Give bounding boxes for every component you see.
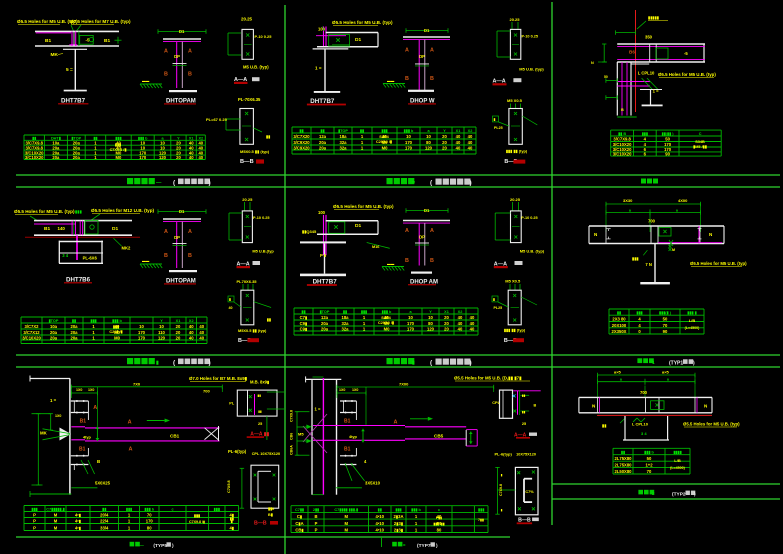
svg-text:D1: D1 [355, 223, 361, 229]
svg-text:X1: X1 [176, 319, 181, 323]
svg-text:P-10 0.25: P-10 0.25 [522, 35, 538, 39]
svg-text:B▮: B▮ [268, 513, 273, 517]
svg-text:B: B [430, 76, 434, 82]
svg-text:3 4: 3 4 [62, 253, 68, 258]
svg-text:▮: ▮ [156, 360, 159, 366]
svg-text:Ø5.5 Holes for M5 U.B. (typ): Ø5.5 Holes for M5 U.B. (typ) [690, 261, 747, 266]
svg-text:170: 170 [146, 519, 154, 524]
svg-text:7 N: 7 N [645, 262, 652, 267]
svg-text:X1: X1 [456, 129, 461, 133]
svg-text:M5: M5 [298, 432, 304, 437]
svg-text:B—B: B—B [240, 159, 254, 165]
svg-text:20X100: 20X100 [612, 323, 627, 328]
svg-text:4▮: 4▮ [229, 525, 234, 530]
svg-text:▮▮▮: ▮▮▮ [381, 129, 387, 133]
svg-text:3/C10X20: 3/C10X20 [613, 151, 632, 156]
svg-text:PL: PL [229, 402, 235, 406]
svg-text:M: M [54, 519, 58, 524]
svg-text:▮▮: ▮▮ [621, 451, 625, 455]
svg-text:L/B: L/B [674, 458, 681, 463]
svg-text:140: 140 [58, 226, 66, 231]
svg-text:B: B [405, 76, 409, 82]
svg-text:20a: 20a [52, 155, 60, 160]
svg-text:4•▮: 4•▮ [75, 513, 81, 518]
svg-text:20a: 20a [71, 324, 79, 329]
svg-text:1X0: 1X0 [55, 414, 61, 418]
svg-text:B: B [164, 72, 168, 78]
svg-text:22/4: 22/4 [100, 519, 109, 524]
svg-text:D1: D1 [424, 28, 430, 33]
svg-text:2L75X80: 2L75X80 [615, 456, 633, 461]
svg-text:S2B4: S2B4 [381, 316, 391, 320]
svg-text:B: B [534, 404, 537, 408]
svg-text:▮▮▮: ▮▮▮ [31, 507, 37, 511]
svg-text:20a: 20a [321, 326, 329, 331]
svg-text:B1: B1 [44, 226, 50, 232]
svg-text:10: 10 [139, 324, 144, 329]
svg-text:M5 U.B.(typ: M5 U.B.(typ [252, 248, 274, 253]
svg-text:3/C7X20: 3/C7X20 [293, 134, 310, 139]
svg-text:▮▮: ▮▮ [320, 129, 324, 133]
svg-text:1: 1 [652, 360, 655, 366]
svg-text:Y: Y [443, 129, 446, 133]
svg-text:25: 25 [522, 422, 526, 426]
svg-text:▮: ▮ [412, 360, 415, 366]
svg-text:▮TOP: ▮TOP [320, 310, 330, 314]
svg-text:40: 40 [199, 335, 204, 340]
svg-text:20: 20 [442, 134, 447, 139]
svg-text:▮▮: ▮▮ [617, 311, 621, 315]
svg-text:10: 10 [408, 315, 413, 320]
svg-text:33/4: 33/4 [100, 525, 109, 530]
svg-text:M: M [54, 513, 58, 518]
svg-text:M5 X0.5: M5 X0.5 [505, 279, 521, 284]
svg-text:70: 70 [647, 469, 652, 474]
svg-text:▮▮▮ b: ▮▮▮ b [411, 508, 421, 512]
svg-text:▮: ▮ [501, 508, 503, 512]
svg-text:1 =: 1 = [50, 398, 57, 403]
svg-text:CB1: CB1 [170, 434, 180, 439]
svg-text:1 =: 1 = [315, 66, 322, 71]
svg-text:M: M [345, 514, 349, 519]
svg-text:N: N [591, 61, 594, 65]
svg-text:▮▮▮ /▮▮: ▮▮▮ /▮▮ [433, 522, 444, 526]
svg-text:20.25: 20.25 [510, 197, 521, 202]
svg-text:a: a [676, 208, 678, 212]
svg-text:▮▮: ▮▮ [378, 508, 382, 512]
svg-text:P-10 0.25: P-10 0.25 [253, 216, 269, 220]
svg-text:CPL: CPL [492, 401, 500, 405]
svg-text:B1: B1 [344, 419, 351, 425]
svg-text:a×5: a×5 [662, 370, 670, 375]
svg-text:10: 10 [159, 324, 164, 329]
svg-text:Ø5.5 Holes for M5 U.B. (typ): Ø5.5 Holes for M5 U.B. (typ) [14, 209, 75, 214]
svg-text:2X350X: 2X350X [612, 329, 627, 334]
svg-text:40: 40 [470, 315, 475, 320]
svg-text:CPL 10X75X120: CPL 10X75X120 [252, 452, 280, 456]
svg-text:D1: D1 [355, 37, 361, 43]
svg-text:80: 80 [437, 527, 442, 532]
svg-text:12a: 12a [321, 315, 329, 320]
svg-text:20: 20 [444, 326, 449, 331]
svg-text:CB6A: CB6A [290, 445, 294, 455]
svg-text:18a: 18a [342, 315, 350, 320]
svg-text:Ø5.5 Holes for M12 U.B. (typ): Ø5.5 Holes for M12 U.B. (typ) [91, 208, 155, 213]
svg-text:A: A [405, 48, 409, 54]
svg-text:D1: D1 [112, 226, 118, 232]
svg-text:100: 100 [318, 210, 326, 215]
svg-text:S34B: S34B [695, 140, 705, 144]
svg-text:P: P [315, 527, 318, 532]
svg-text:40: 40 [468, 134, 473, 139]
svg-text:2L50X80: 2L50X80 [615, 469, 633, 474]
svg-text:18a: 18a [340, 134, 348, 139]
svg-text:a: a [620, 378, 622, 382]
svg-text:▮TOP: ▮TOP [49, 319, 59, 323]
svg-text:Y: Y [429, 310, 432, 314]
svg-text:B: B [188, 253, 192, 259]
svg-text:▮▮▮▮▮: ▮▮▮▮▮ [648, 15, 659, 20]
svg-text:(TYP1: (TYP1 [669, 360, 683, 366]
svg-text:▮▮▮ b: ▮▮▮ b [382, 310, 392, 314]
svg-text:C▮A: C▮A [295, 521, 303, 526]
svg-text:40: 40 [456, 145, 461, 150]
svg-text:▮▮▮: ▮▮▮ [115, 143, 121, 147]
svg-text:C7▮: C7▮ [300, 315, 308, 320]
svg-text:3/C10X20: 3/C10X20 [25, 155, 44, 160]
svg-text:20: 20 [444, 315, 449, 320]
svg-text:4typ: 4typ [83, 436, 91, 440]
svg-text:▮▮Q345: ▮▮Q345 [302, 229, 317, 234]
svg-text:C7X9.8 /▮: C7X9.8 /▮ [189, 520, 205, 524]
svg-text:20a: 20a [71, 335, 79, 340]
svg-text:40: 40 [456, 134, 461, 139]
svg-text:20.25: 20.25 [242, 197, 253, 202]
svg-text:10: 10 [428, 315, 433, 320]
svg-text:2▮3▮: 2▮3▮ [394, 527, 403, 532]
svg-text:Y: Y [160, 319, 163, 323]
svg-text:—: — [156, 180, 162, 186]
svg-text:4X00: 4X00 [678, 198, 688, 203]
svg-text:▮▮: ▮▮ [258, 410, 262, 414]
svg-text:▮▮: ▮▮ [522, 394, 526, 398]
svg-text:700: 700 [648, 219, 656, 224]
svg-text:▮▮▮: ▮▮▮ [361, 310, 367, 314]
svg-text:▮▮: ▮▮ [267, 318, 271, 322]
svg-text:Ø5.5 Holes for M5 U.B. (typ): Ø5.5 Holes for M5 U.B. (typ) [333, 204, 394, 209]
svg-text:▮▮▮▮: ▮▮▮▮ [673, 451, 681, 455]
svg-text:7X0: 7X0 [133, 381, 141, 386]
svg-text:PL=67 0.25: PL=67 0.25 [206, 117, 228, 122]
svg-text:▮▮: ▮▮ [258, 394, 262, 398]
svg-text:7X00: 7X00 [399, 381, 409, 386]
svg-text:1X0: 1X0 [339, 388, 345, 392]
svg-text:170: 170 [407, 326, 415, 331]
svg-text:170: 170 [138, 335, 146, 340]
svg-text:C7▮▮▮▮▮,▮: C7▮▮▮▮▮,▮ [46, 507, 64, 511]
svg-text:▮M5 /▮▮: ▮M5 /▮▮ [693, 145, 707, 149]
svg-text:2▮3A: 2▮3A [394, 514, 404, 519]
svg-text:B: B [314, 514, 317, 519]
svg-text:PL-70X6.35: PL-70X6.35 [238, 97, 261, 102]
svg-text:P: P [33, 525, 36, 530]
svg-text:12a: 12a [319, 134, 327, 139]
svg-text:2▮3▮: 2▮3▮ [394, 521, 403, 526]
svg-text:▮▮: ▮▮ [72, 319, 76, 323]
svg-text:20a: 20a [319, 145, 327, 150]
svg-text:C7X9.8: C7X9.8 [227, 480, 231, 493]
svg-text:D1: D1 [179, 29, 185, 34]
svg-text:3/C9X20: 3/C9X20 [293, 145, 310, 150]
svg-text:40: 40 [229, 306, 233, 310]
svg-text:20a: 20a [73, 155, 81, 160]
svg-text:1 =: 1 = [653, 89, 659, 94]
svg-text:120: 120 [425, 145, 433, 150]
svg-text:PL70X6.35: PL70X6.35 [237, 279, 258, 284]
svg-text:40: 40 [189, 335, 194, 340]
svg-text:M5 U.B. (typ): M5 U.B. (typ) [519, 67, 544, 72]
svg-text:DP: DP [419, 235, 425, 240]
svg-text:▮▮▮: ▮▮▮ [126, 507, 132, 511]
svg-text:4•▮: 4•▮ [75, 525, 81, 530]
svg-text:40: 40 [470, 326, 475, 331]
svg-text:DP: DP [419, 54, 425, 59]
svg-text:C7X9.8: C7X9.8 [290, 410, 294, 422]
svg-text:B1: B1 [80, 419, 87, 425]
svg-text:CB6: CB6 [290, 433, 294, 440]
svg-text:5 =: 5 = [66, 67, 73, 73]
svg-text:M0: M0 [384, 326, 390, 331]
svg-text:A: A [430, 228, 434, 234]
svg-text:c: c [438, 508, 440, 512]
svg-text:4•10: 4•10 [376, 521, 385, 526]
svg-text:PL-6(typ): PL-6(typ) [228, 449, 247, 454]
svg-text:1X0: 1X0 [76, 388, 82, 392]
svg-text:3 4: 3 4 [641, 431, 647, 436]
svg-text:▮▮▮: ▮▮▮ [113, 325, 119, 329]
svg-text:10a: 10a [50, 324, 58, 329]
svg-text:X2: X2 [468, 129, 473, 133]
svg-text:D1: D1 [179, 209, 185, 214]
svg-text:▮▮: ▮▮ [102, 507, 106, 511]
svg-text:25: 25 [258, 422, 262, 426]
svg-text:M5 X0.5: M5 X0.5 [507, 98, 523, 103]
svg-text:A: A [164, 49, 168, 55]
svg-text:▮▮: ▮▮ [230, 517, 234, 521]
svg-text:MK: MK [51, 52, 59, 58]
svg-text:▮▮▮: ▮▮▮ [214, 507, 220, 511]
svg-text:X2: X2 [458, 310, 463, 314]
svg-text:C20B2 /▮: C20B2 /▮ [378, 321, 394, 325]
svg-text:20: 20 [442, 145, 447, 150]
svg-text:40: 40 [198, 155, 203, 160]
svg-text:A: A [93, 405, 97, 411]
svg-text:4•10: 4•10 [376, 514, 385, 519]
svg-text:M: M [672, 248, 675, 252]
svg-text:▮▮▮ b: ▮▮▮ b [144, 507, 154, 511]
svg-text:B6: B6 [629, 50, 635, 55]
svg-text:M5 U.B. (typ): M5 U.B. (typ) [520, 248, 545, 253]
svg-text:3X30: 3X30 [623, 198, 633, 203]
svg-text:120: 120 [158, 335, 166, 340]
svg-text:20: 20 [176, 335, 181, 340]
svg-text:C7▮▮: C7▮▮ [295, 508, 304, 512]
svg-text:a: a [667, 378, 669, 382]
svg-text:Ø5.5 Holes for M5 U.B. (typ): Ø5.5 Holes for M5 U.B. (typ) [683, 422, 740, 427]
svg-text:A: A [129, 446, 133, 452]
svg-text:▮▮▮ b: ▮▮▮ b [112, 319, 122, 323]
svg-text:▮▮▮: ▮▮▮ [642, 132, 648, 136]
svg-text:▮TOP: ▮TOP [338, 129, 348, 133]
svg-text:M0: M0 [116, 155, 122, 160]
svg-text:(TYP7: (TYP7 [417, 543, 431, 549]
svg-text:): ) [470, 180, 472, 187]
svg-text:C20B2 /▮: C20B2 /▮ [376, 140, 392, 144]
svg-text:M5X0.5 ▮▮ (typ): M5X0.5 ▮▮ (typ) [238, 328, 267, 333]
svg-text:20/4: 20/4 [100, 513, 109, 518]
svg-text:P: P [33, 519, 36, 524]
svg-text:=: = [412, 180, 415, 186]
svg-text:10: 10 [406, 134, 411, 139]
svg-text:M0: M0 [114, 335, 120, 340]
svg-text:▮: ▮ [493, 298, 495, 302]
svg-text:L/B: L/B [689, 318, 696, 323]
svg-text:20.25: 20.25 [241, 17, 253, 22]
svg-text:2X3 80: 2X3 80 [612, 317, 626, 322]
svg-text:90: 90 [665, 151, 670, 156]
svg-text:L CPL10: L CPL10 [638, 71, 655, 76]
svg-text:3/C10X20: 3/C10X20 [22, 335, 41, 340]
svg-text:40: 40 [458, 315, 463, 320]
svg-text:C7X9.8: C7X9.8 [499, 484, 503, 496]
svg-text:10X75X120: 10X75X120 [516, 452, 536, 456]
svg-text:C: C [699, 132, 702, 136]
svg-text:3/C7X9.8: 3/C7X9.8 [613, 137, 631, 142]
svg-text:20a: 20a [50, 335, 58, 340]
svg-text:▮▮▮ b: ▮▮▮ b [404, 129, 414, 133]
svg-text:B: B [621, 108, 624, 112]
svg-text:Ø5.5 Holes for M5 U.B. (D,▮▮ ▮: Ø5.5 Holes for M5 U.B. (D,▮▮ ▮7▮ [454, 376, 522, 381]
svg-text:▮▮▮: ▮▮▮ [636, 311, 642, 315]
svg-text:40: 40 [199, 324, 204, 329]
svg-text:▮▮▮: ▮▮▮ [632, 256, 639, 261]
svg-text:P: P [33, 513, 36, 518]
svg-text:▮▮6: ▮▮6 [268, 507, 274, 511]
svg-text:▮▮▮ ▮: ▮▮▮ ▮ [687, 311, 696, 315]
svg-text:50: 50 [647, 456, 652, 461]
svg-text:MK: MK [40, 431, 48, 436]
svg-text:2▮▮: 2▮▮ [313, 508, 319, 512]
svg-text:B: B [164, 253, 168, 259]
svg-text:C7%: C7% [525, 490, 534, 494]
svg-text:-5: -5 [86, 38, 90, 43]
svg-text:MK2: MK2 [122, 246, 132, 251]
svg-text:C20▮ /▮: C20▮ /▮ [109, 330, 122, 334]
svg-text:100: 100 [318, 27, 326, 32]
svg-text:▮▮▮ b: ▮▮▮ b [644, 451, 654, 455]
svg-text:B: B [97, 459, 100, 464]
svg-text:A: A [188, 229, 192, 235]
svg-text:Ø7.5 Holes for M7 U.B. (typ): Ø7.5 Holes for M7 U.B. (typ) [70, 19, 131, 24]
svg-text:40: 40 [189, 324, 194, 329]
svg-text:3/C7X2: 3/C7X2 [25, 324, 40, 329]
svg-text:P 6: P 6 [320, 253, 327, 258]
svg-text:▮▮▮ ▮▮ (typ): ▮▮▮ ▮▮ (typ) [506, 148, 528, 153]
svg-text:B1: B1 [104, 38, 110, 44]
svg-text:M5 U.B. (typ): M5 U.B. (typ) [243, 65, 269, 70]
svg-text:P-10 0.25: P-10 0.25 [255, 34, 273, 39]
svg-text:B: B [430, 258, 434, 264]
svg-text:X1: X1 [444, 310, 449, 314]
svg-text:PL25: PL25 [494, 126, 503, 130]
svg-text:PL-6X6: PL-6X6 [83, 255, 98, 260]
svg-text:▮▮▮: ▮▮▮ [478, 508, 484, 512]
svg-text:B1: B1 [79, 447, 86, 453]
svg-text:A: A [405, 228, 409, 234]
svg-text:a×5: a×5 [614, 370, 622, 375]
svg-text:CB5: CB5 [434, 434, 444, 439]
svg-text:(TYP5: (TYP5 [153, 543, 167, 549]
svg-text:4•10: 4•10 [376, 527, 385, 532]
svg-text:Ø5.5 Holes for M5 U.B. (typ): Ø5.5 Holes for M5 U.B. (typ) [17, 19, 78, 24]
svg-text:4•▮: 4•▮ [75, 519, 81, 524]
svg-text:CB▮: CB▮ [295, 527, 303, 532]
svg-text:▮▮: ▮▮ [343, 310, 347, 314]
svg-text:M5X0.5 ▮▮ (typ): M5X0.5 ▮▮ (typ) [240, 149, 270, 154]
svg-text:): ) [470, 360, 472, 367]
svg-text:▮▮: ▮▮ [299, 129, 303, 133]
svg-text:▮: ▮ [501, 473, 503, 477]
svg-text:50: 50 [665, 137, 670, 142]
svg-text:▮▮: ▮▮ [301, 310, 305, 314]
svg-text:C7▮▮▮▮ ▮▮▮,▮: C7▮▮▮▮ ▮▮▮,▮ [334, 508, 358, 512]
svg-text:▮▮▮: ▮▮▮ [90, 319, 96, 323]
svg-text:20.25: 20.25 [510, 17, 521, 22]
svg-text:M0: M0 [382, 145, 388, 150]
svg-text:80: 80 [147, 525, 152, 530]
svg-text:B: B [188, 72, 192, 78]
svg-text:A: A [164, 229, 168, 235]
svg-text:A: A [394, 419, 398, 425]
svg-text:700: 700 [203, 389, 210, 394]
svg-text:▮▮: ▮▮ [266, 135, 270, 139]
svg-text:20: 20 [176, 324, 181, 329]
svg-text:1X0: 1X0 [88, 388, 94, 392]
svg-text:B—B: B—B [254, 521, 267, 527]
svg-text:90: 90 [663, 329, 668, 334]
svg-text:700: 700 [640, 390, 648, 395]
svg-text:▮▮(▮▮ ): ▮▮(▮▮ ) [662, 132, 675, 136]
svg-text:X2: X2 [189, 319, 194, 323]
svg-text:7▮▮: 7▮▮ [478, 518, 484, 522]
svg-text:(TYP2: (TYP2 [672, 491, 686, 497]
svg-text:2: 2 [652, 491, 655, 496]
svg-text:P: P [315, 521, 318, 526]
svg-text:A: A [128, 419, 132, 425]
svg-text:▮▮ B: ▮▮ B [618, 132, 626, 136]
svg-text:PL-6(typ): PL-6(typ) [495, 451, 513, 456]
svg-text:M: M [345, 521, 349, 526]
svg-text:M.B. 8x9▮: M.B. 8x9▮ [250, 380, 269, 385]
svg-text:Ø5.5 Holes for M5 U.B. (typ): Ø5.5 Holes for M5 U.B. (typ) [332, 20, 393, 25]
svg-text:▬▬: ▬▬ [142, 259, 150, 263]
svg-text:S2B4: S2B4 [379, 135, 389, 139]
svg-text:2L75X80: 2L75X80 [615, 463, 633, 468]
svg-text:10: 10 [426, 134, 431, 139]
svg-text:C▮: C▮ [297, 514, 302, 519]
svg-text:Ø7.0 Holes for B7 M.B. 8x9▮: Ø7.0 Holes for B7 M.B. 8x9▮ [189, 376, 247, 381]
svg-text:▮▮: ▮▮ [360, 129, 364, 133]
